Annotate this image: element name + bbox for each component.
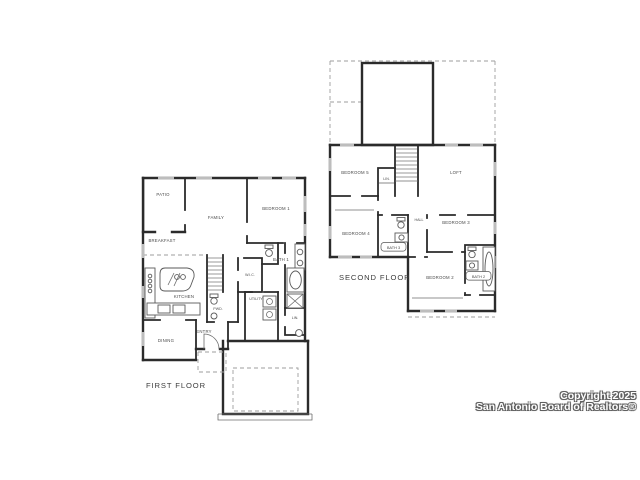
room-label-bedroom5: BEDROOM 5 <box>341 170 369 175</box>
stairs-first-floor <box>208 258 222 290</box>
bath2-tub-icon <box>483 247 495 291</box>
room-label-bedroom1: BEDROOM 1 <box>262 206 290 211</box>
water-heater-icon <box>296 330 303 337</box>
front-door-swing <box>204 334 219 349</box>
room-label-bedroom4: BEDROOM 4 <box>342 231 370 236</box>
second-floor-title: SECOND FLOOR <box>339 273 411 282</box>
room-label-loft: LOFT <box>450 170 462 175</box>
bath2-sink-icon <box>466 261 478 270</box>
room-label-utility: UTILITY <box>249 297 263 301</box>
first-floor-title: FIRST FLOOR <box>146 381 206 390</box>
garage-door-dashed <box>233 368 298 411</box>
room-label-linen-second: LIN. <box>383 177 390 181</box>
room-label-bath1: BATH 1 <box>273 257 289 262</box>
room-label-patio: PATIO <box>156 192 170 197</box>
floorplan-image: PATIO FAMILY BEDROOM 1 BREAKFAST KITCHEN… <box>0 0 640 480</box>
second-floor-plan: BATH 3 BATH 2 BEDROOM 5 LOFT BEDROOM 4 H… <box>330 61 495 317</box>
first-floor-windows <box>143 178 305 346</box>
bathtub-icon <box>287 268 304 292</box>
room-label-kitchen: KITCHEN <box>174 294 194 299</box>
bath2-label-box: BATH 2 <box>466 272 491 281</box>
room-label-bath3: BATH 3 <box>387 245 400 250</box>
room-label-linen-first: LIN. <box>292 316 299 320</box>
room-label-hall: HALL <box>415 218 424 222</box>
room-label-wic: W.I.C. <box>245 273 255 277</box>
patio-outline <box>144 178 185 232</box>
room-label-entry: ENTRY <box>196 329 212 334</box>
room-label-breakfast: BREAKFAST <box>148 238 175 243</box>
garage-outline <box>218 341 312 420</box>
room-label-family: FAMILY <box>208 215 224 220</box>
bath3-sink-icon <box>395 233 408 242</box>
room-label-bedroom3: BEDROOM 3 <box>442 220 470 225</box>
bath3-label-box: BATH 3 <box>381 243 406 252</box>
washer-dryer-icon <box>263 296 276 320</box>
kitchen-island <box>160 268 194 291</box>
copyright-line2: San Antonio Board of Realtors® <box>476 402 636 413</box>
powder-sink-icon <box>211 313 217 319</box>
first-floor-plan: PATIO FAMILY BEDROOM 1 BREAKFAST KITCHEN… <box>143 178 312 420</box>
shower-icon <box>287 294 303 308</box>
bath3-toilet-icon <box>397 218 405 229</box>
powder-toilet-icon <box>210 294 218 304</box>
room-label-bath2: BATH 2 <box>472 274 485 279</box>
copyright-watermark: Copyright 2025 San Antonio Board of Real… <box>476 391 636 414</box>
bath1-vanity-sinks <box>295 244 305 270</box>
stairs-second-floor <box>395 149 418 181</box>
room-label-bedroom2: BEDROOM 2 <box>426 275 454 280</box>
bath1-toilet-icon <box>265 245 273 256</box>
room-label-dining: DINING <box>158 338 175 343</box>
bath2-toilet-icon <box>468 247 476 258</box>
room-label-powder: PWD. <box>213 307 222 311</box>
open-volume-outline <box>362 63 433 145</box>
